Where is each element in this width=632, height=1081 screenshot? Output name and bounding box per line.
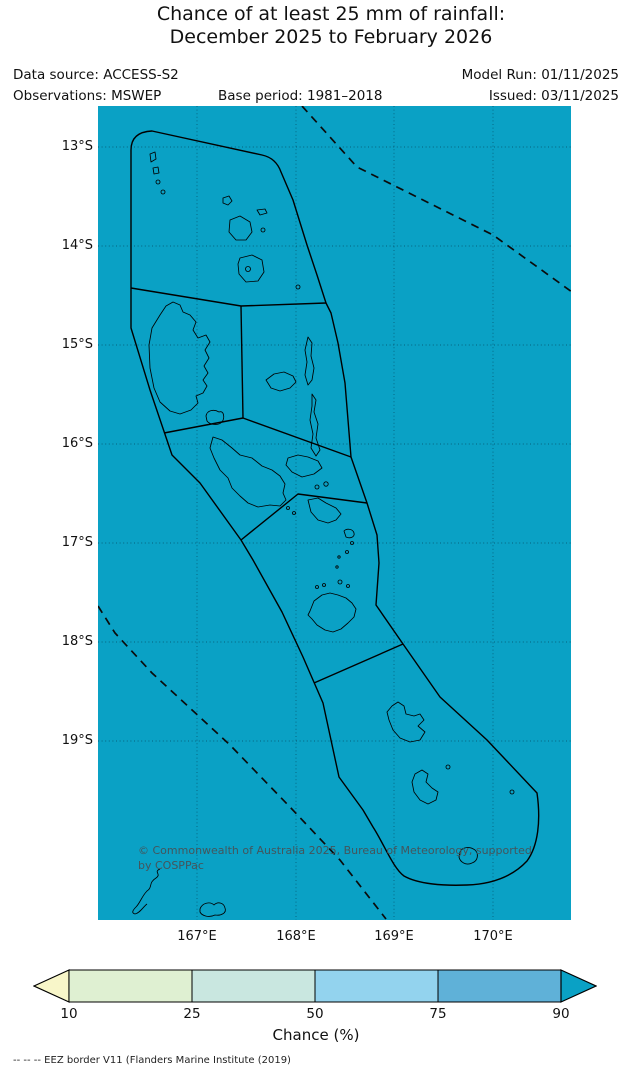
colorbar-segment-10-25 — [69, 970, 192, 1002]
lon-axis-label: 167°E — [167, 929, 227, 944]
lat-axis-label: 18°S — [0, 633, 93, 651]
page-title-line1: Chance of at least 25 mm of rainfall: — [30, 3, 632, 26]
map-copyright-line2: by COSPPac — [138, 858, 532, 873]
colorbar-tick-label: 50 — [295, 1006, 335, 1022]
lat-axis-label: 14°S — [0, 237, 93, 255]
colorbar-right-arrow — [561, 970, 596, 1002]
lon-axis-label: 168°E — [266, 929, 326, 944]
lon-axis-label: 169°E — [364, 929, 424, 944]
map-copyright: © Commonwealth of Australia 2025, Bureau… — [138, 843, 532, 873]
page-title: Chance of at least 25 mm of rainfall: De… — [30, 3, 632, 49]
colorbar-segment-50-75 — [315, 970, 438, 1002]
colorbar-left-arrow — [34, 970, 69, 1002]
observations-text: Observations: MSWEP — [13, 88, 161, 105]
colorbar-title: Chance (%) — [0, 1026, 632, 1044]
colorbar-segment-25-50 — [192, 970, 315, 1002]
colorbar-tick-label: 75 — [418, 1006, 458, 1022]
colorbar-tick-label: 90 — [541, 1006, 581, 1022]
lat-axis-label: 13°S — [0, 138, 93, 156]
sea-background — [98, 106, 571, 920]
data-source-text: Data source: ACCESS-S2 — [13, 67, 179, 84]
lat-axis-label: 17°S — [0, 534, 93, 552]
lat-axis-label: 16°S — [0, 435, 93, 453]
model-run-text: Model Run: 01/11/2025 — [462, 67, 619, 84]
colorbar-tick-label: 25 — [172, 1006, 212, 1022]
map-canvas — [98, 106, 571, 920]
rainfall-outlook-figure: Chance of at least 25 mm of rainfall: De… — [0, 0, 632, 1081]
issued-text: Issued: 03/11/2025 — [489, 88, 619, 105]
lon-axis-label: 170°E — [463, 929, 523, 944]
colorbar-segment-75-90 — [438, 970, 561, 1002]
base-period-text: Base period: 1981–2018 — [218, 88, 382, 105]
page-title-line2: December 2025 to February 2026 — [30, 26, 632, 49]
forecast-map: © Commonwealth of Australia 2025, Bureau… — [98, 106, 571, 920]
colorbar-tick-label: 10 — [49, 1006, 89, 1022]
eez-footnote: -- -- -- EEZ border V11 (Flanders Marine… — [13, 1055, 291, 1066]
lat-axis-label: 19°S — [0, 732, 93, 750]
lat-axis-label: 15°S — [0, 336, 93, 354]
map-copyright-line1: © Commonwealth of Australia 2025, Bureau… — [138, 843, 532, 858]
colorbar — [33, 969, 597, 1007]
